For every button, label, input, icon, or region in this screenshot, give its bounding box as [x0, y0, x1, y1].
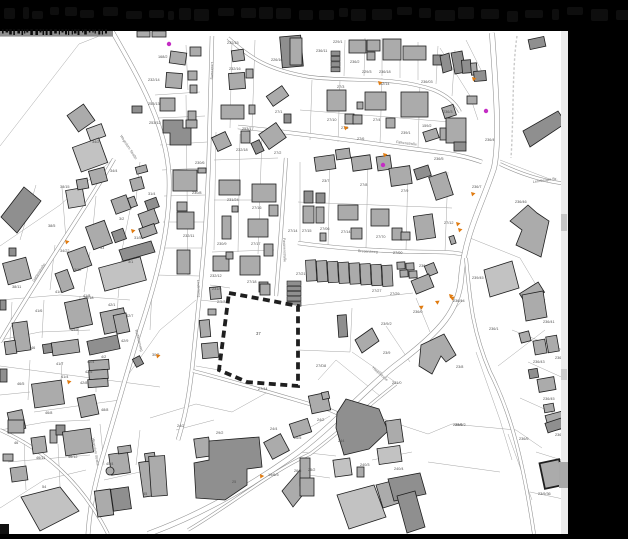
svg-text:27/12: 27/12	[444, 221, 454, 225]
svg-text:226/16: 226/16	[271, 58, 283, 62]
svg-text:230/8: 230/8	[192, 191, 202, 195]
svg-text:231/24: 231/24	[227, 198, 239, 202]
svg-text:3/12: 3/12	[74, 268, 81, 272]
svg-text:25/2: 25/2	[308, 468, 315, 472]
svg-text:23/7: 23/7	[322, 179, 329, 183]
svg-text:48/8: 48/8	[101, 408, 108, 412]
svg-text:25: 25	[232, 480, 236, 484]
svg-text:229/3: 229/3	[362, 70, 372, 74]
svg-text:24/4: 24/4	[270, 427, 277, 431]
svg-text:42/5: 42/5	[85, 370, 92, 374]
svg-text:37: 37	[256, 331, 261, 336]
svg-text:46: 46	[14, 441, 18, 445]
svg-text:3/2: 3/2	[119, 217, 124, 221]
svg-text:239/45: 239/45	[472, 276, 484, 280]
svg-text:27/14: 27/14	[288, 229, 298, 233]
svg-text:42/7: 42/7	[126, 314, 133, 318]
svg-text:27/8: 27/8	[360, 183, 367, 187]
svg-text:27/4: 27/4	[373, 118, 380, 122]
svg-text:236/41: 236/41	[543, 320, 555, 324]
svg-text:240/3: 240/3	[360, 463, 370, 467]
svg-text:Fasanenstraße: Fasanenstraße	[282, 238, 287, 262]
svg-text:236/5: 236/5	[434, 157, 444, 161]
svg-text:236/4: 236/4	[485, 138, 495, 142]
svg-text:23/9/36: 23/9/36	[538, 492, 551, 496]
svg-text:232/15: 232/15	[227, 41, 239, 45]
svg-text:236/11: 236/11	[316, 49, 327, 53]
svg-text:253/13: 253/13	[148, 102, 160, 106]
svg-text:232/18: 232/18	[236, 148, 248, 152]
svg-text:38/15: 38/15	[60, 185, 70, 189]
svg-text:236/43: 236/43	[533, 360, 545, 364]
svg-text:34/2: 34/2	[92, 140, 99, 144]
svg-text:41/7: 41/7	[56, 362, 63, 366]
svg-text:236/5: 236/5	[519, 437, 529, 441]
svg-text:232/11: 232/11	[183, 234, 194, 238]
svg-text:42/1: 42/1	[108, 303, 115, 307]
svg-text:27/1: 27/1	[275, 110, 282, 114]
svg-text:159/2: 159/2	[422, 124, 432, 128]
svg-text:241/0: 241/0	[392, 381, 402, 385]
svg-text:45/4: 45/4	[106, 462, 113, 466]
svg-text:27/15: 27/15	[302, 229, 312, 233]
svg-text:240/4: 240/4	[394, 467, 404, 471]
svg-text:236/18: 236/18	[379, 70, 391, 74]
svg-text:54: 54	[42, 485, 46, 489]
svg-text:27/6: 27/6	[357, 137, 364, 141]
svg-text:Lindenweg: Lindenweg	[210, 62, 214, 79]
svg-text:41/9: 41/9	[55, 290, 62, 294]
svg-text:236/3: 236/3	[443, 110, 453, 114]
svg-text:23/9: 23/9	[383, 351, 390, 355]
svg-text:45/8: 45/8	[71, 328, 78, 332]
svg-text:19/6/5: 19/6/5	[268, 473, 279, 477]
svg-text:3/1: 3/1	[128, 260, 133, 264]
svg-text:230/6: 230/6	[195, 161, 205, 165]
svg-text:23/8: 23/8	[456, 365, 463, 369]
svg-text:232/16: 232/16	[229, 67, 241, 71]
svg-text:42/9: 42/9	[121, 339, 128, 343]
svg-text:236/7: 236/7	[472, 185, 482, 189]
svg-text:26/5: 26/5	[294, 436, 301, 440]
svg-text:236/0: 236/0	[413, 310, 423, 314]
svg-text:31/4: 31/4	[148, 192, 155, 196]
svg-text:236/44: 236/44	[453, 299, 465, 303]
svg-text:38/11: 38/11	[12, 285, 21, 289]
svg-text:27/14: 27/14	[341, 230, 351, 234]
svg-text:33: 33	[100, 246, 104, 250]
svg-text:27/70: 27/70	[376, 235, 386, 239]
svg-text:27/16: 27/16	[252, 206, 262, 210]
svg-text:42/4: 42/4	[87, 360, 94, 364]
svg-text:253/17: 253/17	[242, 127, 254, 131]
svg-text:27/44: 27/44	[258, 387, 268, 391]
svg-text:230/9: 230/9	[217, 242, 227, 246]
svg-text:236/45: 236/45	[543, 397, 555, 401]
svg-text:4/2: 4/2	[101, 355, 106, 359]
svg-text:24/2: 24/2	[177, 424, 184, 428]
svg-text:41/6: 41/6	[35, 309, 42, 313]
svg-text:238/2: 238/2	[453, 423, 463, 427]
svg-text:27/27: 27/27	[372, 289, 382, 293]
svg-text:236: 236	[419, 264, 425, 268]
svg-text:26/5: 26/5	[294, 469, 301, 473]
svg-text:31/5: 31/5	[134, 236, 141, 240]
svg-text:27/06: 27/06	[320, 227, 330, 231]
svg-text:23/9/2: 23/9/2	[381, 322, 392, 326]
svg-text:46/12: 46/12	[68, 455, 78, 459]
svg-text:45: 45	[143, 492, 147, 496]
svg-text:34/22: 34/22	[60, 249, 70, 253]
svg-text:229/1: 229/1	[333, 40, 343, 44]
svg-text:232/12: 232/12	[210, 274, 222, 278]
svg-text:46: 46	[31, 346, 35, 350]
svg-text:27/29: 27/29	[390, 292, 400, 296]
svg-text:41/4: 41/4	[61, 375, 68, 379]
svg-text:27/18: 27/18	[247, 280, 257, 284]
svg-text:24/2: 24/2	[317, 418, 324, 422]
svg-text:239/1: 239/1	[401, 131, 411, 135]
svg-text:27/00: 27/00	[393, 251, 403, 255]
svg-text:236/03: 236/03	[421, 80, 433, 84]
svg-text:168/2: 168/2	[158, 55, 168, 59]
svg-text:42/8: 42/8	[80, 381, 87, 385]
svg-text:29/2: 29/2	[216, 431, 223, 435]
svg-text:231/5: 231/5	[212, 287, 222, 291]
svg-text:27/21: 27/21	[296, 272, 306, 276]
svg-text:232/14: 232/14	[148, 78, 160, 82]
svg-text:27/9: 27/9	[401, 189, 408, 193]
svg-text:27/10: 27/10	[327, 118, 337, 122]
svg-text:27/3: 27/3	[337, 85, 344, 89]
svg-text:27/2: 27/2	[274, 151, 281, 155]
svg-text:244: 244	[338, 439, 344, 443]
svg-text:2/5/8: 2/5/8	[217, 300, 225, 304]
svg-text:236/1: 236/1	[489, 327, 499, 331]
svg-text:27/D8: 27/D8	[316, 364, 326, 368]
svg-text:46/11: 46/11	[36, 456, 45, 460]
svg-text:46/8: 46/8	[45, 411, 52, 415]
svg-text:236/2: 236/2	[350, 60, 360, 64]
svg-text:38/5: 38/5	[48, 224, 55, 228]
svg-text:34/4: 34/4	[110, 169, 117, 173]
svg-text:46/5: 46/5	[17, 382, 24, 386]
svg-text:236/46: 236/46	[515, 200, 527, 204]
svg-text:253/12: 253/12	[149, 121, 161, 125]
svg-text:27/17: 27/17	[251, 242, 261, 246]
svg-text:41/18: 41/18	[84, 296, 94, 300]
